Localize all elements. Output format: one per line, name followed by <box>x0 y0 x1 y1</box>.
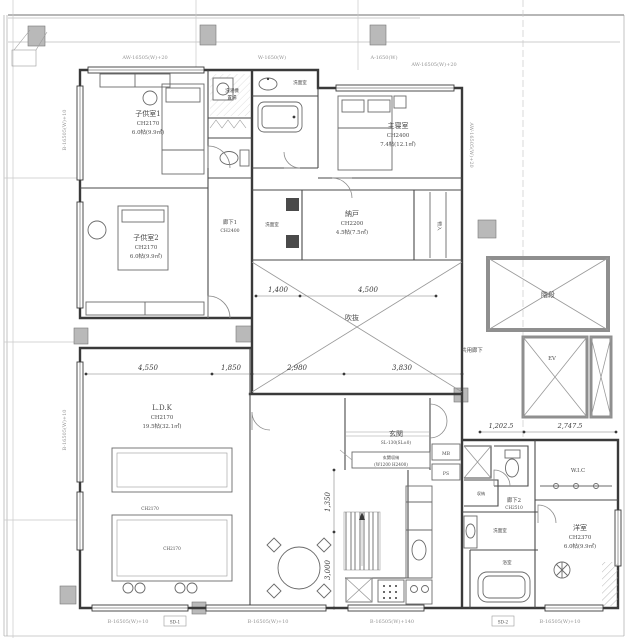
tatami-b-ch: CH2170 <box>163 546 181 551</box>
room-label-wash2: 洗面室 <box>493 527 507 534</box>
hatched-area <box>602 562 618 606</box>
room-label-closet-master: 物入 <box>436 221 443 231</box>
room-label-laundry: 洗濯機 <box>225 87 239 94</box>
sash-tag: B-16505(W)+10 <box>248 618 289 625</box>
column-marker <box>74 328 88 344</box>
room-label-wash-mid: 洗面室 <box>265 221 279 228</box>
floor-plan-sheet: 1,400 4,500 4,550 1,850 2,980 3,830 1,20… <box>0 0 630 640</box>
grid-columns <box>12 25 496 614</box>
room-label-kids2: 子供室2 <box>133 233 158 242</box>
sash-tag: AW-16505(W)+20 <box>468 121 475 167</box>
wic-hanger-icon <box>540 484 612 489</box>
table-icon <box>88 221 106 239</box>
sash-tag: AW-16505(W)+20 <box>410 61 456 68</box>
room-label-west: 洋室 <box>573 523 587 532</box>
tatami-platform-a <box>112 448 232 492</box>
room-area-master: 7.4帖(12.1㎡) <box>380 140 416 148</box>
window <box>77 86 83 180</box>
stool-icon <box>143 91 157 105</box>
entrance-note2: (W1200 H2400) <box>374 462 408 467</box>
washing-machine-icon <box>210 74 250 116</box>
room-area-ldk: 19.5帖(32.1㎡) <box>143 422 182 430</box>
room-ch-ldk: CH2170 <box>151 415 174 421</box>
bathtub-icon-upper <box>258 102 302 132</box>
room-ch-hall1: CH2400 <box>220 228 239 234</box>
sash-tag: B-16505(W)+140 <box>370 618 414 625</box>
room-label-wic: W.I.C <box>571 468 585 474</box>
sash-tag: AW-16505(W)+20 <box>121 54 167 61</box>
room-label-ldk: L.D.K <box>152 404 172 412</box>
window <box>77 492 83 550</box>
room-label-hall1: 廊下1 <box>223 218 237 226</box>
sash-tag: B-16505(W)+10 <box>540 618 581 625</box>
room-label-common-corridor: 共用廊下 <box>461 346 483 354</box>
column-marker <box>60 586 76 604</box>
void-cross <box>252 262 462 392</box>
boxed-tag: SD-2 <box>492 616 514 626</box>
sash-tag: W-1650(W) <box>258 54 286 61</box>
plant-icon <box>554 562 570 578</box>
toilet-icon-lower <box>505 450 520 477</box>
window <box>545 605 603 611</box>
shaft-x-box <box>464 446 491 478</box>
window <box>92 605 188 611</box>
column-marker <box>200 25 216 45</box>
bathtub-icon-lower <box>478 572 530 602</box>
room-label-mb: MB <box>442 451 451 457</box>
dining-table-icon <box>267 538 331 598</box>
room-ch-west: CH2370 <box>569 535 592 541</box>
toilet-icon-upper <box>220 150 249 166</box>
room-ch-kids2: CH2170 <box>135 245 158 251</box>
room-area-kids1: 6.0帖(9.9㎡) <box>132 128 164 136</box>
bed-icon-kids1 <box>143 84 204 174</box>
closet-fold-door <box>210 120 246 128</box>
window-tags: AW-16505(W)+20 W-1650(W) A-1650(W) AW-16… <box>61 54 580 626</box>
sash-tag: B-16505(W)+10 <box>108 618 149 625</box>
nightstand-icon <box>394 96 406 108</box>
dimension-label: 4,550 <box>137 364 159 372</box>
entrance-note1: 玄関収納 <box>383 454 400 461</box>
column-marker <box>28 26 45 46</box>
window <box>88 67 204 73</box>
room-label-bath2: 浴室 <box>502 559 512 566</box>
window <box>206 605 326 611</box>
dimension-label: 1,350 <box>324 491 332 512</box>
closet-shelf-kids1 <box>100 74 170 87</box>
room-label-hall2: 廊下2 <box>507 496 521 504</box>
site-boundary <box>4 15 624 636</box>
boxed-tag-label: SD-1 <box>170 620 181 625</box>
dimension-label: 1,850 <box>221 364 242 372</box>
column-marker <box>370 25 386 45</box>
window <box>77 362 83 482</box>
washbasin-icon-upper <box>259 78 277 90</box>
room-label-stairwell: 階段 <box>541 290 555 299</box>
floor-plan-drawing: 1,400 4,500 4,550 1,850 2,980 3,830 1,20… <box>0 0 630 640</box>
room-label-void: 吹抜 <box>345 313 359 322</box>
room-label-wash1: 洗面室 <box>293 79 307 86</box>
room-label-ps: PS <box>443 471 449 477</box>
window <box>615 510 621 566</box>
dimension-label: 1,202.5 <box>489 422 514 430</box>
dimension-label: 3,830 <box>392 364 413 372</box>
room-label-kids1: 子供室1 <box>135 109 160 118</box>
stove-grid-icon <box>378 580 404 602</box>
column-marker <box>236 326 252 342</box>
room-label-master: 主寝室 <box>388 121 409 130</box>
floor-cushions <box>123 583 197 593</box>
room-label-elevator: EV <box>548 356 556 362</box>
dimension-label: 2,980 <box>286 364 308 372</box>
window <box>77 202 83 308</box>
sash-tag: A-1650(W) <box>369 54 397 61</box>
fixtures <box>86 74 618 606</box>
window <box>348 605 424 611</box>
boxed-tag: SD-1 <box>164 616 186 626</box>
dimension-label: 4,500 <box>357 286 379 294</box>
room-label-storage2: 収納 <box>477 490 485 497</box>
dimension-label: 3,000 <box>324 559 332 580</box>
room-ch-kids1: CH2170 <box>137 121 160 127</box>
room-area-kids2: 6.0帖(9.9㎡) <box>130 252 162 260</box>
room-ch-master: CH2400 <box>387 133 410 139</box>
elevator-shaft <box>523 337 611 417</box>
under-stair-storage <box>346 578 372 602</box>
room-ch-storage-n: CH2200 <box>341 221 364 227</box>
dimension-label: 2,747.5 <box>557 422 583 430</box>
boxed-tag-label: SD-2 <box>498 620 509 625</box>
column-marker <box>478 220 496 238</box>
sink-icon <box>412 540 426 560</box>
room-area-west: 6.0帖(9.9㎡) <box>564 542 596 550</box>
room-label-storage-n: 納戸 <box>345 209 359 218</box>
room-label-entrance: 玄関 <box>389 429 403 438</box>
kitchen-counter-icon <box>406 486 432 604</box>
stairs-icon <box>344 512 380 570</box>
washbasin-icon-lower <box>464 516 477 548</box>
sash-tag: B-16505(W)+10 <box>61 410 68 451</box>
window <box>336 85 454 91</box>
cabinet-kids2 <box>86 302 204 315</box>
room-area-storage-n: 4.5帖(7.5㎡) <box>336 228 368 236</box>
cabinet-washmid <box>286 198 299 248</box>
walls-lower-block <box>80 348 618 608</box>
room-ch-hall2: CH2510 <box>505 505 523 510</box>
sash-tag: B-16505(W)+10 <box>61 110 68 151</box>
room-label-laundry2: 置場 <box>227 94 237 101</box>
dimension-label: 1,400 <box>268 286 289 294</box>
tatami-a-ch: CH2170 <box>141 506 159 511</box>
entrance-level: SL-130(SL±0) <box>381 440 412 445</box>
